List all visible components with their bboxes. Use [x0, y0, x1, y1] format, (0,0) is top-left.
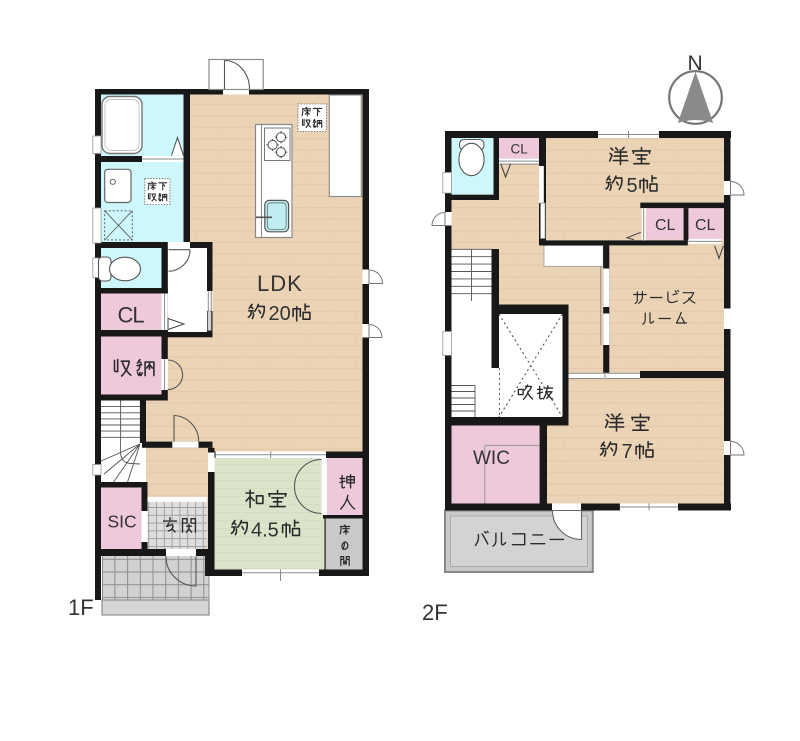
svg-text:5: 5: [627, 175, 638, 197]
svg-text:CL: CL: [655, 217, 676, 234]
svg-text:7: 7: [622, 441, 633, 463]
svg-text:CL: CL: [118, 303, 145, 328]
svg-text:20: 20: [269, 303, 291, 325]
svg-text:SIC: SIC: [108, 512, 137, 532]
svg-text:N: N: [688, 52, 703, 75]
svg-text:1F: 1F: [68, 595, 94, 620]
svg-text:CL: CL: [511, 142, 529, 157]
svg-text:2F: 2F: [422, 600, 448, 625]
svg-text:CL: CL: [695, 217, 716, 234]
svg-text:LDK: LDK: [257, 271, 303, 296]
svg-text:WIC: WIC: [473, 448, 510, 469]
svg-text:4.5: 4.5: [251, 519, 279, 541]
